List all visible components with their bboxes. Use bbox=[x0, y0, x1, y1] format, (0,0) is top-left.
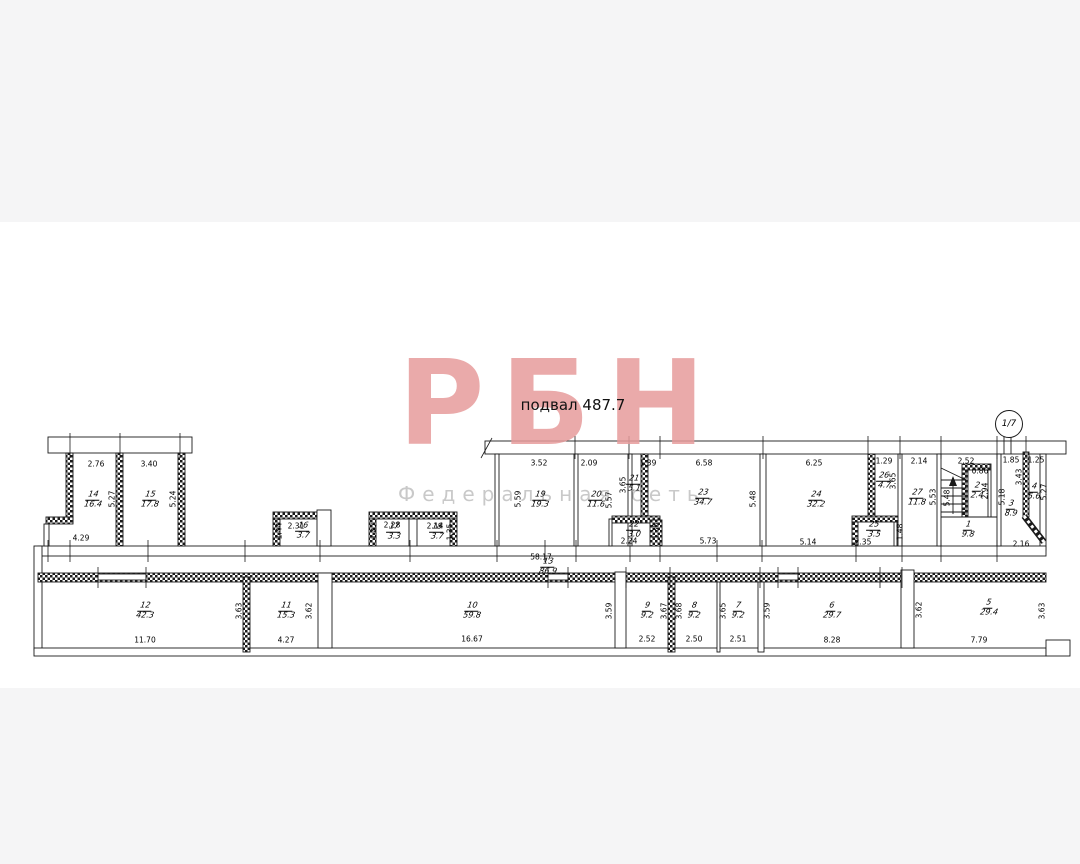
scanned-floorplan-page: Федеральная сеть bbox=[0, 0, 1080, 864]
floorplan-area: Федеральная сеть bbox=[0, 0, 1080, 864]
plan-title: подвал 487.7 bbox=[521, 396, 626, 414]
axis-marker-1-7: 1/7 bbox=[995, 410, 1023, 438]
